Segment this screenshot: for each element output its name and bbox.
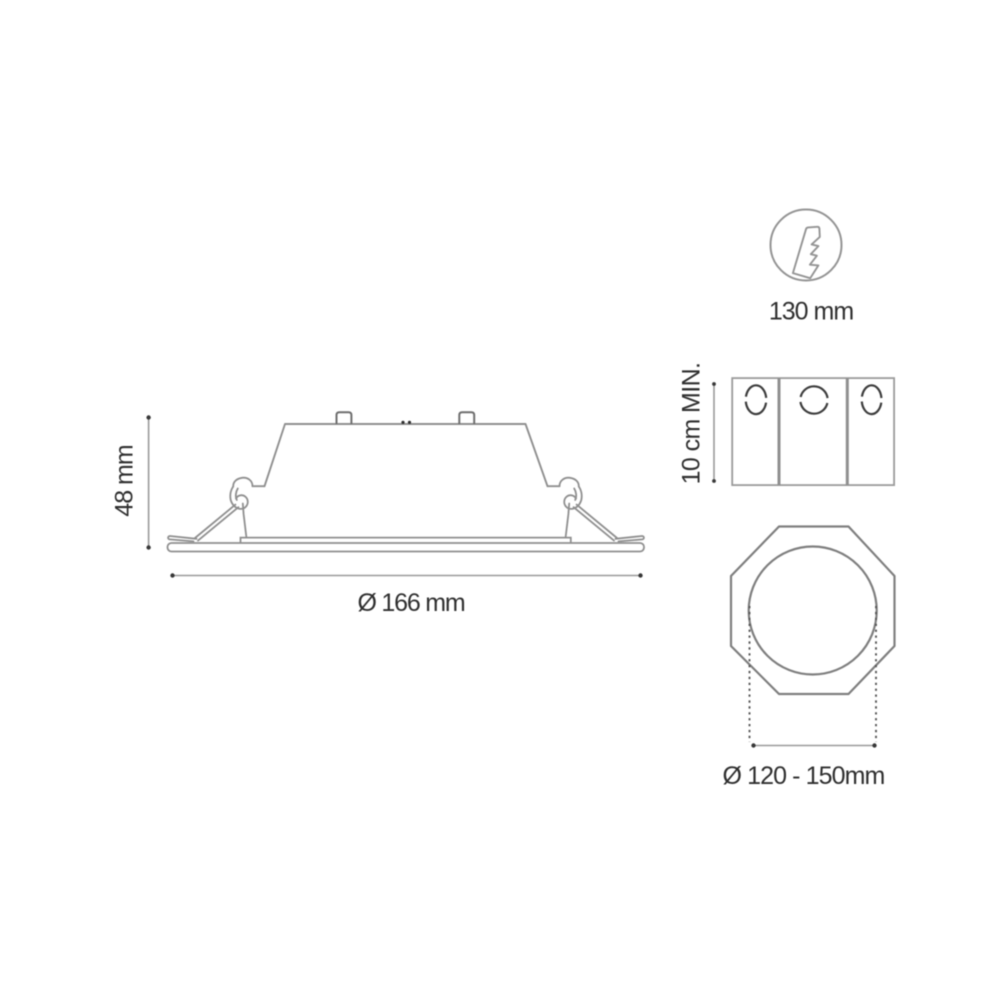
- svg-text:130 mm: 130 mm: [769, 297, 853, 325]
- svg-text:Ø 120 - 150mm: Ø 120 - 150mm: [723, 762, 885, 790]
- svg-text:48 mm: 48 mm: [111, 445, 139, 517]
- svg-text:10 cm MIN.: 10 cm MIN.: [678, 363, 706, 485]
- svg-text:Ø 166 mm: Ø 166 mm: [357, 589, 464, 617]
